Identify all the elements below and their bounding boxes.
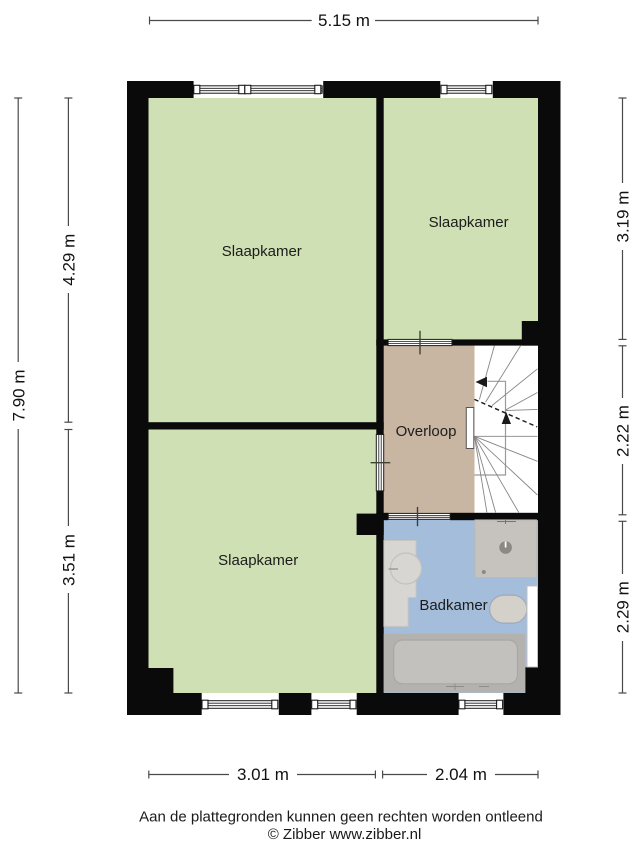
svg-text:Aan de plattegronden kunnen ge: Aan de plattegronden kunnen geen rechten…: [139, 809, 543, 826]
svg-text:Overloop: Overloop: [396, 423, 457, 440]
svg-text:2.04 m: 2.04 m: [435, 765, 487, 784]
svg-text:Badkamer: Badkamer: [419, 597, 487, 614]
svg-text:4.29 m: 4.29 m: [60, 234, 79, 286]
svg-text:7.90 m: 7.90 m: [9, 370, 28, 422]
svg-text:5.15 m: 5.15 m: [318, 11, 370, 30]
svg-text:Slaapkamer: Slaapkamer: [222, 243, 302, 260]
svg-text:2.22 m: 2.22 m: [614, 405, 633, 457]
svg-text:© Zibber www.zibber.nl: © Zibber www.zibber.nl: [268, 826, 422, 843]
svg-text:2.29 m: 2.29 m: [614, 581, 633, 633]
svg-text:3.01 m: 3.01 m: [237, 765, 289, 784]
svg-text:Slaapkamer: Slaapkamer: [218, 552, 298, 569]
svg-text:3.19 m: 3.19 m: [614, 191, 633, 243]
svg-text:Slaapkamer: Slaapkamer: [429, 214, 509, 231]
svg-text:3.51 m: 3.51 m: [60, 534, 79, 586]
